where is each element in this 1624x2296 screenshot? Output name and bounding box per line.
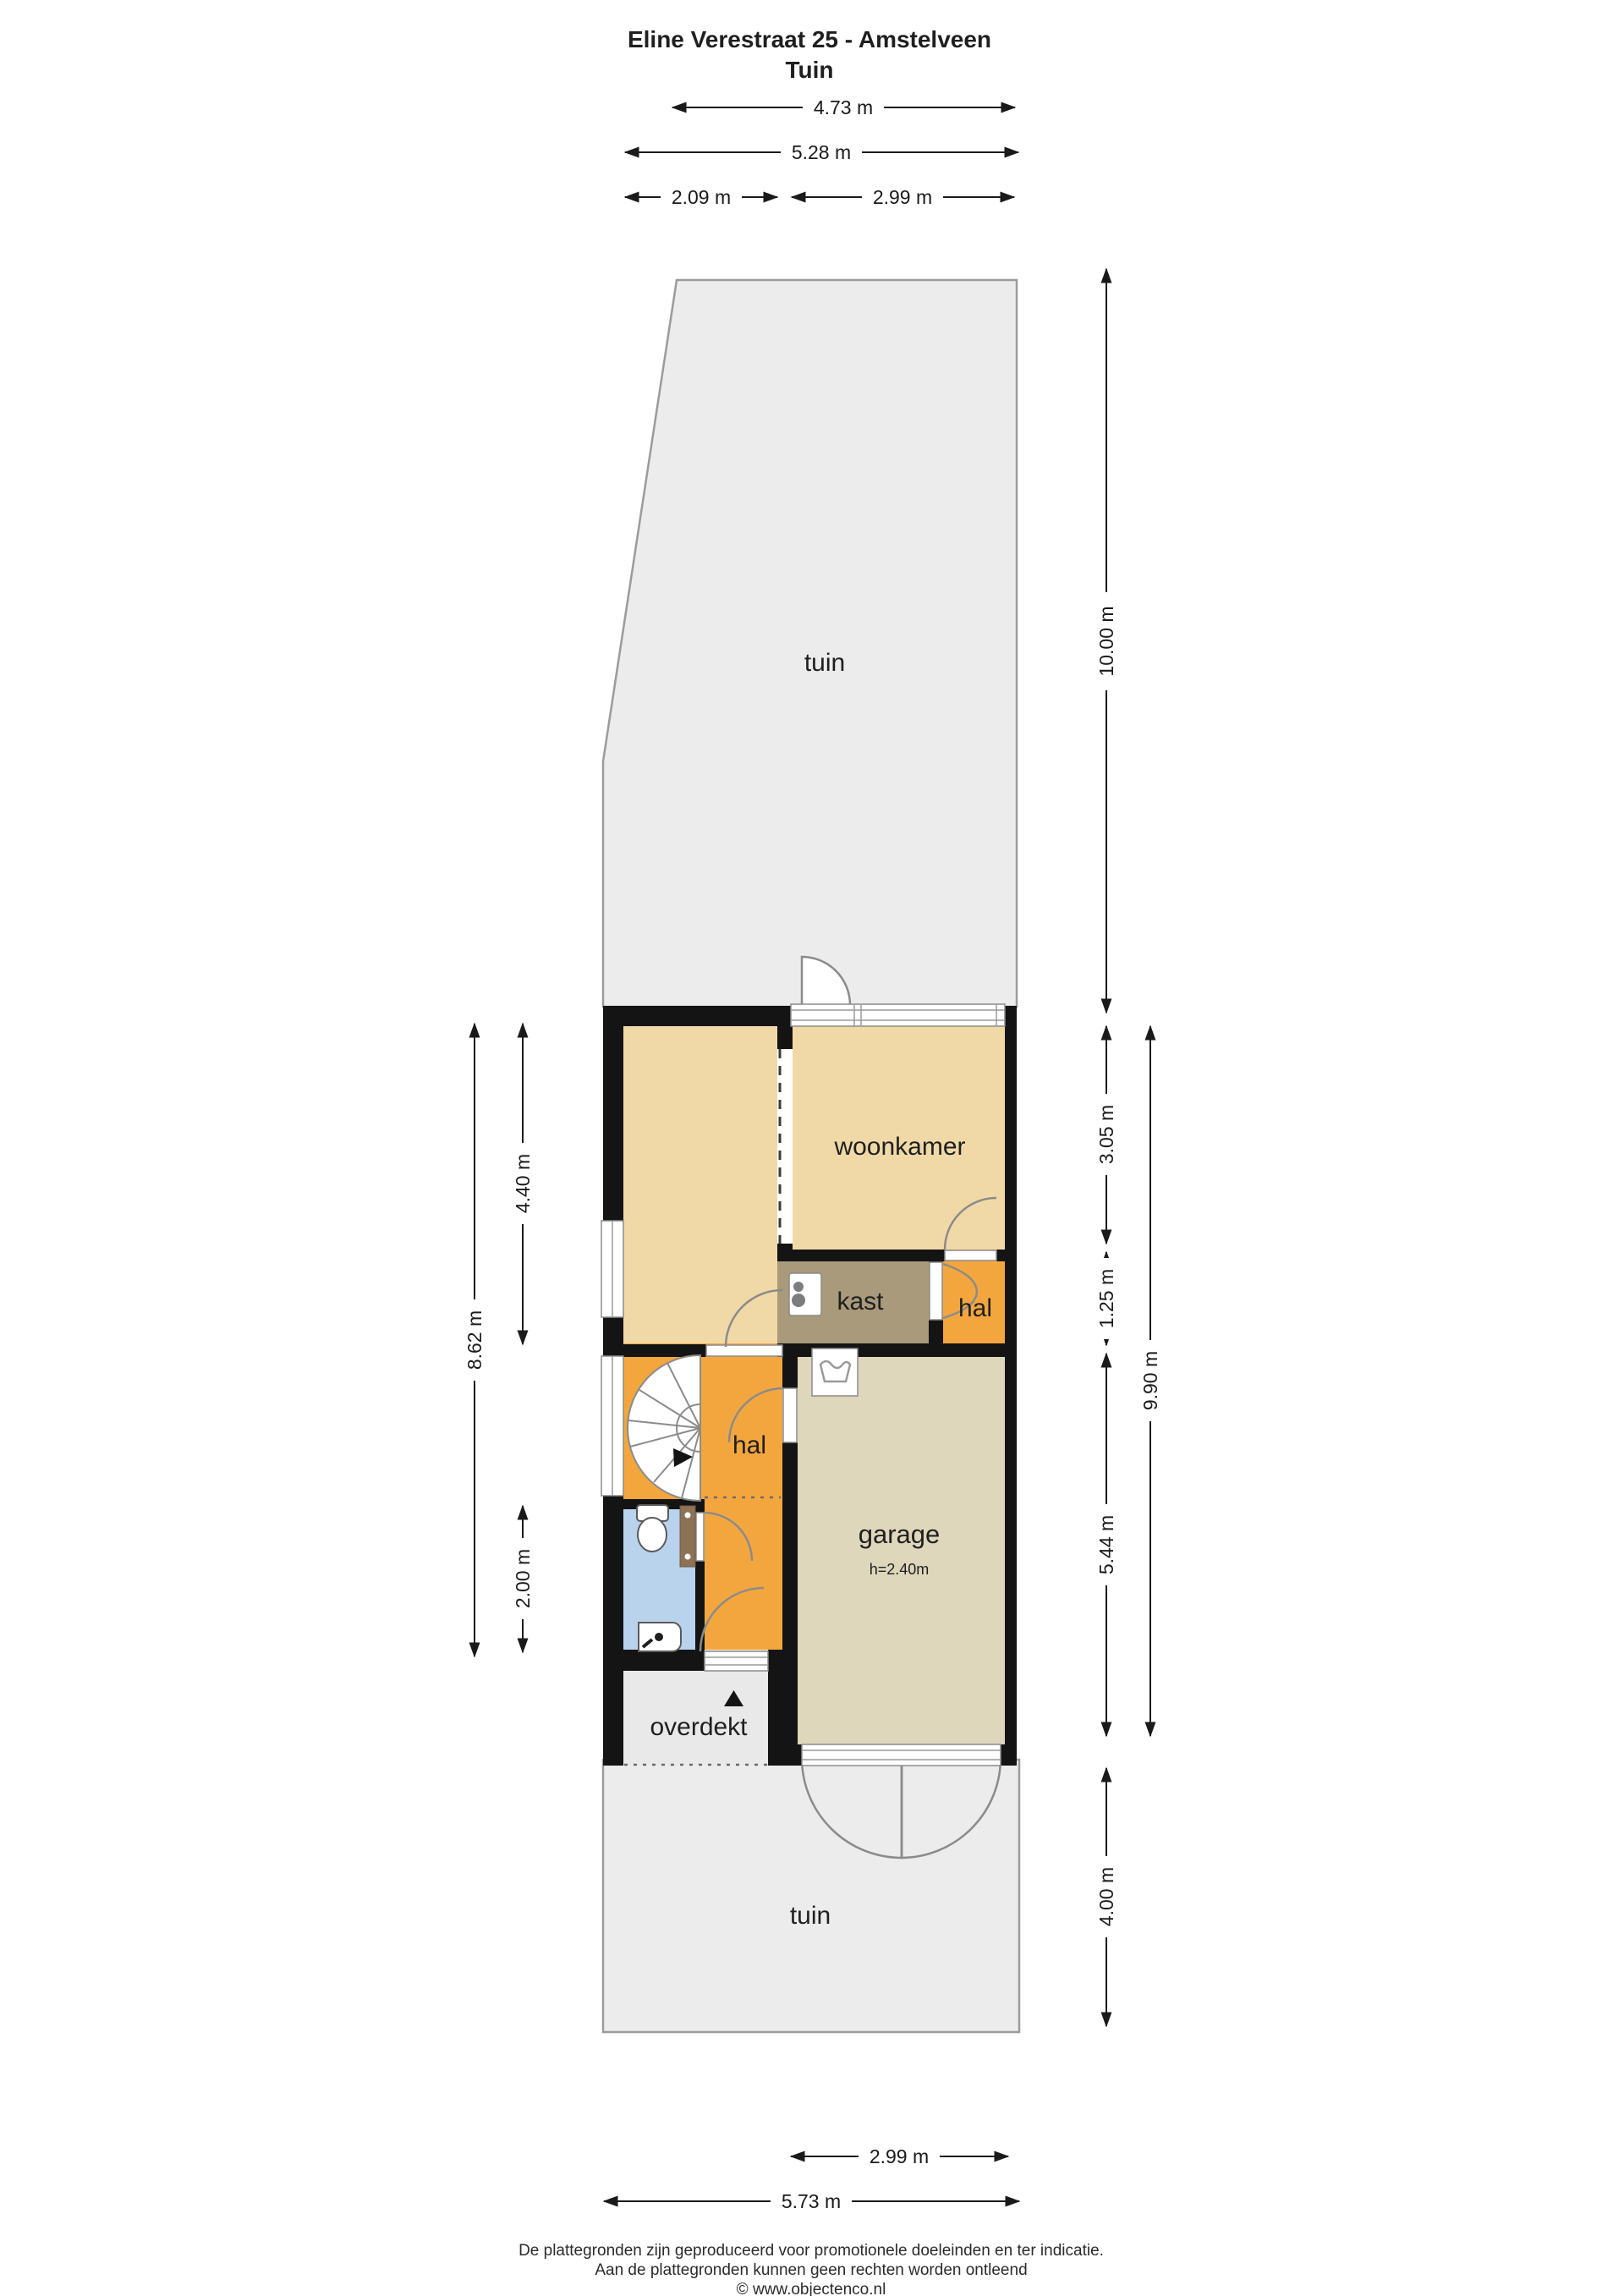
- svg-text:8.62 m: 8.62 m: [464, 1310, 486, 1370]
- dimension-right-10-00: 10.00 m: [1095, 269, 1118, 1013]
- window-left-room: [601, 1221, 623, 1317]
- label-kast: kast: [837, 1288, 884, 1316]
- dimension-top-2-09: 2.09 m: [625, 185, 777, 209]
- room-hal-corridor: [694, 1500, 798, 1671]
- room-garage: [782, 1343, 1017, 1760]
- svg-text:4.73 m: 4.73 m: [814, 96, 873, 118]
- label-tuin-top: tuin: [804, 649, 845, 677]
- svg-text:10.00 m: 10.00 m: [1095, 606, 1117, 676]
- svg-text:4.40 m: 4.40 m: [512, 1154, 534, 1213]
- svg-text:4.00 m: 4.00 m: [1095, 1867, 1117, 1926]
- svg-text:2.99 m: 2.99 m: [873, 186, 932, 208]
- window-stair-hal: [601, 1356, 623, 1496]
- svg-text:2.00 m: 2.00 m: [512, 1549, 534, 1608]
- label-hal-lower: hal: [732, 1431, 766, 1459]
- dimension-right-5-44: 5.44 m: [1095, 1354, 1118, 1736]
- door-hal-garage: [783, 1388, 797, 1442]
- dimension-top-5-28: 5.28 m: [625, 140, 1018, 164]
- svg-text:2.99 m: 2.99 m: [870, 2145, 929, 2167]
- label-woonkamer: woonkamer: [833, 1133, 965, 1161]
- sliding-door: [791, 1004, 1005, 1026]
- dimension-left-4-40: 4.40 m: [511, 1024, 535, 1344]
- dimension-left-8-62: 8.62 m: [463, 1024, 486, 1656]
- garden-top-area: [603, 280, 1017, 1007]
- garage-door-band: [802, 1744, 1001, 1766]
- label-garage-height: h=2.40m: [870, 1561, 930, 1578]
- dimension-top-4-73: 4.73 m: [672, 96, 1015, 119]
- dimension-bottom-5-73: 5.73 m: [604, 2189, 1019, 2213]
- footer-disclaimer: De plattegronden zijn geproduceerd voor …: [518, 2242, 1104, 2296]
- boiler-icon: [789, 1273, 821, 1316]
- door-toilet: [696, 1513, 704, 1561]
- label-garage: garage: [859, 1519, 941, 1549]
- label-tuin-bottom: tuin: [790, 1902, 831, 1930]
- dimension-right-9-90: 9.90 m: [1138, 1026, 1162, 1736]
- dimension-right-3-05: 3.05 m: [1095, 1026, 1118, 1244]
- floorplan-canvas: Eline Verestraat 25 - Amstelveen Tuin: [0, 0, 1624, 2296]
- open-connection: [777, 1049, 793, 1244]
- label-hal-upper: hal: [958, 1294, 992, 1322]
- corner-sink-icon: [639, 1623, 681, 1651]
- floorplan-page: Eline Verestraat 25 - Amstelveen Tuin: [0, 0, 1624, 2296]
- svg-text:9.90 m: 9.90 m: [1139, 1351, 1161, 1410]
- door-left-room: [706, 1345, 782, 1356]
- page-title: Eline Verestraat 25 - Amstelveen Tuin: [628, 26, 991, 83]
- footer-line2: Aan de plattegronden kunnen geen rechten…: [595, 2261, 1027, 2279]
- svg-text:1.25 m: 1.25 m: [1095, 1269, 1117, 1328]
- svg-text:5.28 m: 5.28 m: [792, 141, 851, 163]
- toilet-icon: [637, 1505, 668, 1552]
- label-overdekt: overdekt: [650, 1713, 748, 1741]
- dimension-left-2-00: 2.00 m: [511, 1506, 535, 1652]
- footer-line3: © www.objectenco.nl: [737, 2281, 886, 2296]
- dimension-right-4-00: 4.00 m: [1095, 1768, 1118, 2026]
- washing-machine-icon: [812, 1348, 858, 1396]
- door-woonkamer-hal: [945, 1250, 996, 1261]
- radiator-icon: [680, 1506, 695, 1567]
- svg-text:5.44 m: 5.44 m: [1095, 1515, 1117, 1574]
- svg-text:3.05 m: 3.05 m: [1095, 1105, 1117, 1164]
- title-line2: Tuin: [785, 57, 833, 83]
- footer-line1: De plattegronden zijn geproduceerd voor …: [518, 2242, 1104, 2260]
- svg-text:5.73 m: 5.73 m: [782, 2190, 841, 2212]
- room-left: [603, 1007, 793, 1357]
- door-kast-hal: [930, 1262, 942, 1320]
- front-door: [705, 1651, 768, 1671]
- title-line1: Eline Verestraat 25 - Amstelveen: [628, 26, 991, 52]
- dimension-bottom-2-99: 2.99 m: [791, 2145, 1008, 2168]
- dimension-right-1-25: 1.25 m: [1095, 1252, 1118, 1345]
- dimension-top-2-99: 2.99 m: [792, 185, 1014, 209]
- svg-text:2.09 m: 2.09 m: [672, 186, 731, 208]
